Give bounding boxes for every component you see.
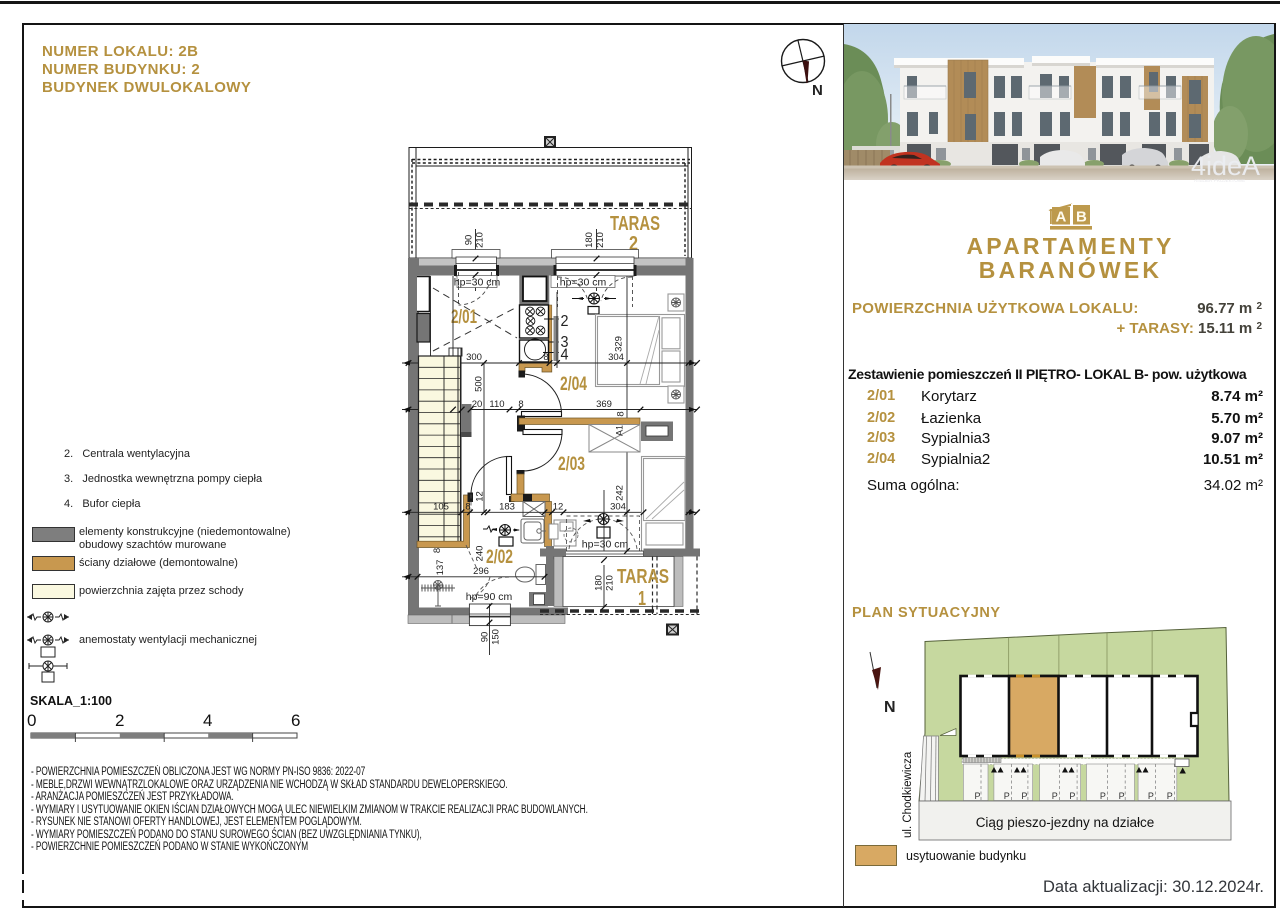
svg-text:N: N xyxy=(884,699,896,716)
svg-text:8: 8 xyxy=(616,411,627,416)
svg-text:TARAS: TARAS xyxy=(610,213,660,235)
svg-text:P: P xyxy=(1148,791,1154,801)
svg-text:500: 500 xyxy=(474,376,485,392)
svg-text:180: 180 xyxy=(584,232,595,248)
svg-text:180: 180 xyxy=(594,575,605,591)
svg-text:ul. Chodkiewicza: ul. Chodkiewicza xyxy=(902,751,914,838)
svg-text:150: 150 xyxy=(491,629,502,645)
svg-text:hp=30 cm: hp=30 cm xyxy=(454,277,501,289)
svg-text:12: 12 xyxy=(475,491,486,502)
svg-text:4: 4 xyxy=(203,714,212,730)
svg-text:TARAS: TARAS xyxy=(617,566,669,588)
svg-text:183: 183 xyxy=(499,502,515,513)
svg-text:242: 242 xyxy=(615,485,626,501)
svg-text:210: 210 xyxy=(605,575,616,591)
svg-text:P: P xyxy=(974,791,980,801)
svg-text:0: 0 xyxy=(27,714,36,730)
svg-text:ATELIER PROJEKTOWE: ATELIER PROJEKTOWE xyxy=(1194,178,1245,183)
svg-text:110: 110 xyxy=(489,399,504,410)
svg-text:8: 8 xyxy=(543,352,548,363)
svg-text:6: 6 xyxy=(291,714,300,730)
svg-text:Ciąg pieszo-jezdny na działce: Ciąg pieszo-jezdny na działce xyxy=(976,815,1155,830)
svg-text:20: 20 xyxy=(472,399,483,410)
svg-text:105: 105 xyxy=(433,502,449,513)
svg-text:2/04: 2/04 xyxy=(560,374,587,395)
svg-text:P: P xyxy=(1100,791,1106,801)
svg-text:2/03: 2/03 xyxy=(558,454,585,475)
svg-text:329: 329 xyxy=(614,336,625,352)
svg-text:2: 2 xyxy=(115,714,124,730)
svg-text:2/02: 2/02 xyxy=(486,547,513,568)
svg-text:4ideA: 4ideA xyxy=(1191,151,1260,181)
svg-text:2/01: 2/01 xyxy=(451,307,477,328)
svg-text:210: 210 xyxy=(475,232,486,248)
svg-text:296: 296 xyxy=(473,566,489,577)
svg-text:P: P xyxy=(1119,791,1125,801)
svg-text:8: 8 xyxy=(432,548,443,553)
svg-text:369: 369 xyxy=(596,399,612,410)
svg-text:90: 90 xyxy=(464,235,475,246)
svg-text:8: 8 xyxy=(465,502,470,513)
svg-text:P: P xyxy=(1167,791,1173,801)
svg-text:hp=30 cm: hp=30 cm xyxy=(582,539,629,551)
svg-text:210: 210 xyxy=(595,232,606,248)
svg-text:4: 4 xyxy=(561,347,569,364)
svg-text:P: P xyxy=(1004,791,1010,801)
svg-text:300: 300 xyxy=(466,352,482,363)
svg-text:A: A xyxy=(1056,209,1067,226)
svg-text:N: N xyxy=(812,82,823,99)
svg-text:B: B xyxy=(1076,209,1087,226)
svg-text:P: P xyxy=(1021,791,1027,801)
svg-text:240: 240 xyxy=(475,546,486,562)
svg-text:2: 2 xyxy=(561,313,569,330)
svg-text:304: 304 xyxy=(608,352,624,363)
svg-text:137: 137 xyxy=(435,560,446,576)
svg-text:A1: A1 xyxy=(615,425,625,436)
svg-text:304: 304 xyxy=(610,502,626,513)
svg-text:1: 1 xyxy=(638,588,646,610)
svg-text:hp=90 cm: hp=90 cm xyxy=(466,591,513,603)
svg-text:P: P xyxy=(1069,791,1075,801)
svg-text:90: 90 xyxy=(480,632,491,643)
svg-text:P: P xyxy=(1052,791,1058,801)
